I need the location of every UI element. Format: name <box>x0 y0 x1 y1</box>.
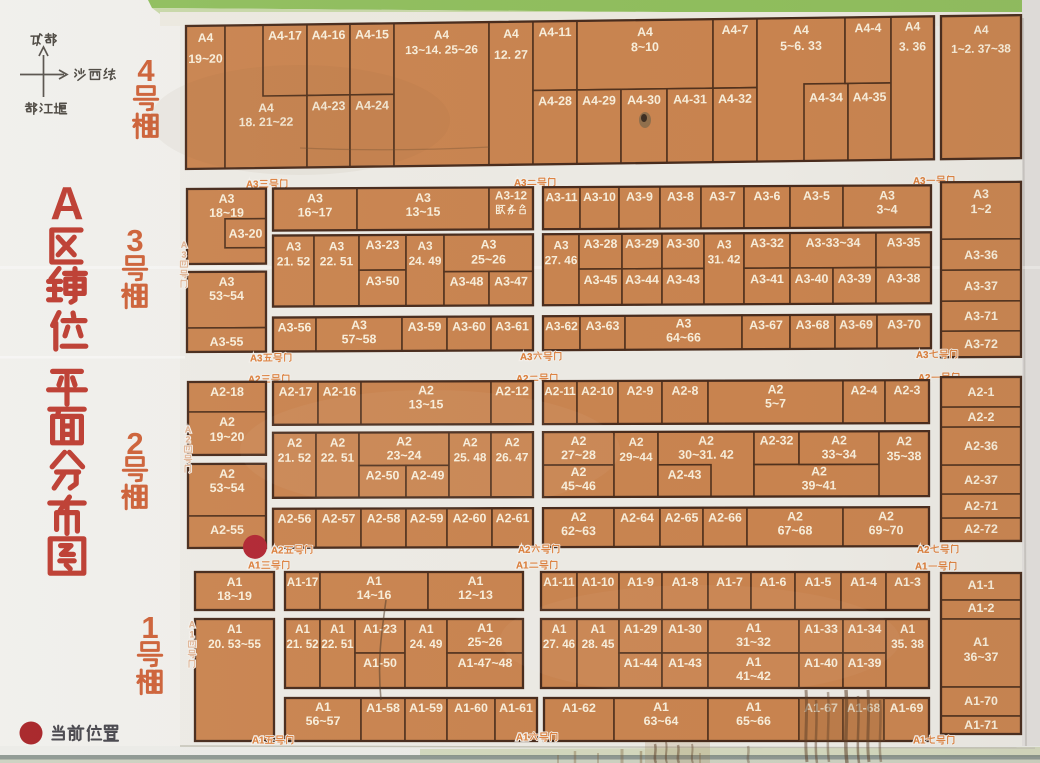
svg-text:A3: A3 <box>520 352 533 363</box>
svg-text:A1: A1 <box>418 622 434 636</box>
svg-text:A3: A3 <box>916 350 929 361</box>
svg-text:A4: A4 <box>434 28 450 42</box>
svg-text:A3: A3 <box>716 237 732 251</box>
svg-text:A2: A2 <box>811 464 827 478</box>
svg-text:A3-41: A3-41 <box>750 272 784 286</box>
svg-text:A2-64: A2-64 <box>620 511 654 525</box>
svg-text:A1-5: A1-5 <box>805 575 832 589</box>
svg-text:A3: A3 <box>415 191 431 205</box>
svg-text:A2-43: A2-43 <box>668 468 702 482</box>
svg-text:A4-17: A4-17 <box>268 28 302 42</box>
svg-text:A4-4: A4-4 <box>855 21 882 35</box>
svg-text:A2-3: A2-3 <box>894 383 921 397</box>
svg-text:A2-59: A2-59 <box>410 511 444 525</box>
svg-text:25~26: 25~26 <box>468 635 503 649</box>
svg-text:53~54: 53~54 <box>209 289 244 303</box>
svg-text:A3-28: A3-28 <box>584 237 618 251</box>
svg-text:A3-40: A3-40 <box>795 272 829 286</box>
svg-text:A3-47: A3-47 <box>494 274 528 288</box>
svg-text:14~16: 14~16 <box>357 588 392 602</box>
svg-text:A: A <box>189 620 196 630</box>
svg-text:A: A <box>50 177 83 229</box>
svg-text:A2-18: A2-18 <box>210 385 244 399</box>
svg-text:A3-67: A3-67 <box>749 318 783 332</box>
svg-text:A2-8: A2-8 <box>672 384 699 398</box>
svg-text:A1-62: A1-62 <box>562 701 596 715</box>
svg-text:A3-20: A3-20 <box>229 227 263 241</box>
svg-text:A1: A1 <box>973 635 989 649</box>
svg-text:21. 52: 21. 52 <box>286 638 318 651</box>
svg-text:A2: A2 <box>896 434 912 448</box>
svg-text:A2-61: A2-61 <box>496 511 530 525</box>
svg-text:20. 53~55: 20. 53~55 <box>208 637 261 651</box>
svg-text:A4: A4 <box>793 23 809 37</box>
svg-text:A3-43: A3-43 <box>666 272 700 286</box>
svg-text:A1: A1 <box>315 700 331 714</box>
svg-text:A1: A1 <box>295 623 310 636</box>
svg-text:A2-2: A2-2 <box>968 410 995 424</box>
svg-text:A4-34: A4-34 <box>809 90 843 104</box>
svg-text:A2-4: A2-4 <box>851 383 878 397</box>
svg-text:A3-69: A3-69 <box>839 318 873 332</box>
svg-text:12~13: 12~13 <box>458 588 493 602</box>
svg-text:A3: A3 <box>219 275 235 289</box>
svg-text:1: 1 <box>189 630 194 640</box>
svg-text:A3-6: A3-6 <box>754 189 781 203</box>
svg-text:A1: A1 <box>468 574 484 588</box>
svg-text:A3: A3 <box>219 192 235 206</box>
svg-text:A1-58: A1-58 <box>366 701 400 715</box>
svg-text:21. 52: 21. 52 <box>277 254 311 268</box>
svg-text:A1-2: A1-2 <box>968 601 995 615</box>
svg-text:A1-17: A1-17 <box>287 576 319 589</box>
svg-text:A3: A3 <box>286 239 302 253</box>
svg-text:A3-48: A3-48 <box>450 275 484 289</box>
svg-text:A4: A4 <box>973 23 989 37</box>
svg-text:A3: A3 <box>250 353 263 364</box>
svg-text:30~31. 42: 30~31. 42 <box>678 448 734 462</box>
svg-text:A1: A1 <box>252 736 265 747</box>
svg-text:A3-37: A3-37 <box>964 279 998 293</box>
svg-text:A2-57: A2-57 <box>322 512 356 526</box>
svg-text:A1: A1 <box>516 733 529 744</box>
svg-text:A4: A4 <box>637 25 653 39</box>
svg-text:A3: A3 <box>973 187 989 201</box>
svg-text:A1: A1 <box>746 700 762 714</box>
svg-text:A2: A2 <box>628 435 644 449</box>
svg-text:A1: A1 <box>227 575 243 589</box>
svg-text:A1-70: A1-70 <box>964 694 998 708</box>
svg-text:A: A <box>185 425 192 435</box>
svg-text:A2-32: A2-32 <box>760 433 794 447</box>
svg-text:A3-61: A3-61 <box>495 319 529 333</box>
svg-text:1: 1 <box>141 610 158 645</box>
svg-text:A4-28: A4-28 <box>538 94 572 108</box>
svg-text:19~20: 19~20 <box>210 430 245 444</box>
svg-text:A1: A1 <box>653 700 669 714</box>
svg-text:13~15: 13~15 <box>406 205 441 219</box>
svg-text:24. 49: 24. 49 <box>409 254 442 268</box>
svg-text:A1: A1 <box>477 621 493 635</box>
svg-text:A4-32: A4-32 <box>718 92 752 106</box>
svg-text:A4-29: A4-29 <box>582 93 616 107</box>
svg-text:A1-23: A1-23 <box>363 622 397 636</box>
svg-text:12. 27: 12. 27 <box>494 48 528 62</box>
svg-text:A2-10: A2-10 <box>581 384 614 398</box>
svg-text:A3: A3 <box>481 237 497 251</box>
svg-text:35~38: 35~38 <box>887 449 922 463</box>
svg-text:13~14. 25~26: 13~14. 25~26 <box>405 42 478 57</box>
svg-text:A3-50: A3-50 <box>366 274 400 288</box>
svg-text:A4-35: A4-35 <box>853 90 887 104</box>
svg-text:A1: A1 <box>913 736 926 747</box>
svg-text:A3-62: A3-62 <box>545 319 578 333</box>
svg-text:A2-9: A2-9 <box>627 384 654 398</box>
svg-text:3~4: 3~4 <box>876 202 897 216</box>
svg-text:63~64: 63~64 <box>644 714 679 728</box>
svg-text:36~37: 36~37 <box>964 650 999 664</box>
svg-text:69~70: 69~70 <box>869 523 904 537</box>
svg-text:A1-71: A1-71 <box>964 718 998 732</box>
svg-text:A1: A1 <box>900 622 916 636</box>
svg-text:A3-36: A3-36 <box>964 248 998 262</box>
svg-text:A1-10: A1-10 <box>582 575 615 589</box>
svg-text:A3-29: A3-29 <box>625 237 659 251</box>
svg-text:A2-58: A2-58 <box>367 511 401 525</box>
svg-text:1~2: 1~2 <box>970 202 991 216</box>
svg-text:A2-37: A2-37 <box>964 473 998 487</box>
svg-text:A3-32: A3-32 <box>750 236 784 250</box>
svg-text:A4-30: A4-30 <box>627 93 661 107</box>
svg-text:A4: A4 <box>198 31 214 45</box>
svg-text:3. 36: 3. 36 <box>899 39 926 53</box>
svg-text:31. 42: 31. 42 <box>708 252 741 266</box>
svg-text:A2: A2 <box>768 383 784 397</box>
svg-text:A3-35: A3-35 <box>887 235 921 249</box>
svg-text:A2-71: A2-71 <box>964 499 998 513</box>
svg-text:A3: A3 <box>553 238 569 252</box>
svg-text:A2: A2 <box>219 415 235 429</box>
svg-text:A3: A3 <box>676 316 692 330</box>
svg-text:A3-71: A3-71 <box>964 309 998 323</box>
svg-text:A3-56: A3-56 <box>278 320 312 334</box>
svg-text:A3-23: A3-23 <box>366 238 400 252</box>
svg-text:56~57: 56~57 <box>306 714 341 728</box>
svg-text:A3-12: A3-12 <box>495 188 528 202</box>
svg-text:A3-60: A3-60 <box>452 320 486 334</box>
svg-text:A2-55: A2-55 <box>210 523 244 537</box>
svg-text:A3-30: A3-30 <box>666 236 700 250</box>
svg-text:3: 3 <box>181 250 186 260</box>
svg-text:2: 2 <box>185 434 190 444</box>
svg-text:57~58: 57~58 <box>342 332 377 346</box>
svg-text:A3: A3 <box>351 318 367 332</box>
svg-text:A2-1: A2-1 <box>968 385 995 399</box>
svg-text:18~19: 18~19 <box>209 206 244 220</box>
svg-text:A3-70: A3-70 <box>887 317 921 331</box>
svg-text:A3-5: A3-5 <box>803 189 830 203</box>
svg-text:A2: A2 <box>787 509 803 523</box>
svg-text:25~26: 25~26 <box>471 252 506 266</box>
svg-text:A3-8: A3-8 <box>667 189 694 203</box>
svg-text:A2: A2 <box>698 434 714 448</box>
svg-text:A3-44: A3-44 <box>625 273 659 287</box>
svg-text:64~66: 64~66 <box>666 330 701 344</box>
svg-text:8~10: 8~10 <box>631 40 659 54</box>
svg-text:A1-59: A1-59 <box>409 701 443 715</box>
svg-text:A2-56: A2-56 <box>278 512 312 526</box>
svg-text:A3-33~34: A3-33~34 <box>806 236 861 250</box>
svg-text:A3-9: A3-9 <box>626 190 653 204</box>
svg-text:5~6. 33: 5~6. 33 <box>780 39 822 54</box>
svg-text:39~41: 39~41 <box>802 478 837 492</box>
svg-text:A2: A2 <box>571 510 587 524</box>
svg-text:A3-55: A3-55 <box>210 335 244 349</box>
svg-text:A1-1: A1-1 <box>968 578 995 592</box>
svg-text:A1-3: A1-3 <box>894 575 921 589</box>
svg-text:A4-11: A4-11 <box>538 25 571 39</box>
svg-text:A3-45: A3-45 <box>584 273 618 287</box>
svg-text:A2: A2 <box>878 509 894 523</box>
svg-text:33~34: 33~34 <box>822 447 857 461</box>
svg-text:A3: A3 <box>307 191 323 205</box>
svg-text:A4: A4 <box>503 27 519 41</box>
svg-text:A2: A2 <box>831 433 847 447</box>
svg-text:A2: A2 <box>219 467 235 481</box>
svg-text:67~68: 67~68 <box>778 523 813 537</box>
svg-text:A2: A2 <box>917 545 930 556</box>
svg-text:A4-15: A4-15 <box>355 27 389 41</box>
svg-text:A1: A1 <box>366 574 382 588</box>
svg-text:A1: A1 <box>227 622 243 636</box>
svg-text:A1: A1 <box>516 561 529 572</box>
svg-text:A1: A1 <box>248 561 261 572</box>
svg-text:A1-47~48: A1-47~48 <box>458 656 513 670</box>
svg-text:A2-65: A2-65 <box>665 511 699 525</box>
svg-text:A: A <box>181 240 188 250</box>
svg-text:A4-31: A4-31 <box>673 92 707 106</box>
svg-text:27. 46: 27. 46 <box>545 253 578 267</box>
svg-text:A1-60: A1-60 <box>454 701 488 715</box>
svg-text:A2-66: A2-66 <box>708 511 742 525</box>
svg-text:53~54: 53~54 <box>210 481 245 495</box>
svg-text:A1-61: A1-61 <box>499 701 533 715</box>
svg-text:65~66: 65~66 <box>736 714 771 728</box>
svg-text:A3: A3 <box>329 239 345 253</box>
svg-text:A4-7: A4-7 <box>722 23 749 37</box>
svg-text:A1-4: A1-4 <box>850 575 877 589</box>
svg-text:5~7: 5~7 <box>765 397 786 411</box>
svg-text:A3: A3 <box>417 239 433 253</box>
svg-text:4: 4 <box>137 53 155 88</box>
svg-text:19~20: 19~20 <box>188 52 222 66</box>
svg-text:A2-72: A2-72 <box>964 522 998 536</box>
svg-text:A1-6: A1-6 <box>760 575 787 589</box>
svg-text:A2-36: A2-36 <box>964 439 998 453</box>
svg-text:16~17: 16~17 <box>298 205 333 219</box>
svg-text:1~2. 37~38: 1~2. 37~38 <box>951 41 1011 56</box>
svg-text:A3-7: A3-7 <box>709 189 736 203</box>
svg-text:A4: A4 <box>905 19 921 33</box>
svg-text:A1-69: A1-69 <box>890 701 924 715</box>
svg-text:A3-38: A3-38 <box>887 271 921 285</box>
svg-text:A3-10: A3-10 <box>583 190 616 204</box>
svg-text:A3-11: A3-11 <box>545 190 577 204</box>
svg-text:24. 49: 24. 49 <box>410 637 443 651</box>
svg-text:A3-59: A3-59 <box>408 320 442 334</box>
svg-text:A1: A1 <box>330 623 345 636</box>
svg-text:29~44: 29~44 <box>619 450 653 464</box>
svg-text:22. 51: 22. 51 <box>320 254 354 268</box>
svg-text:A3-63: A3-63 <box>586 319 620 333</box>
svg-text:22. 51: 22. 51 <box>321 638 354 651</box>
svg-text:A3-68: A3-68 <box>796 318 830 332</box>
svg-text:A2-17: A2-17 <box>279 385 313 399</box>
svg-text:A2-11: A2-11 <box>544 384 576 398</box>
svg-text:A2: A2 <box>271 545 284 556</box>
svg-text:A1-11: A1-11 <box>543 575 575 589</box>
svg-text:A3: A3 <box>879 188 895 202</box>
svg-text:62~63: 62~63 <box>561 524 596 538</box>
svg-text:A3-72: A3-72 <box>964 337 998 351</box>
svg-text:3: 3 <box>126 223 143 258</box>
svg-text:18~19: 18~19 <box>217 589 252 603</box>
svg-text:A2-60: A2-60 <box>453 511 487 525</box>
svg-text:A2: A2 <box>518 545 531 556</box>
svg-text:A3-39: A3-39 <box>838 272 872 286</box>
svg-text:2: 2 <box>126 426 143 461</box>
svg-text:A4-16: A4-16 <box>312 28 346 42</box>
